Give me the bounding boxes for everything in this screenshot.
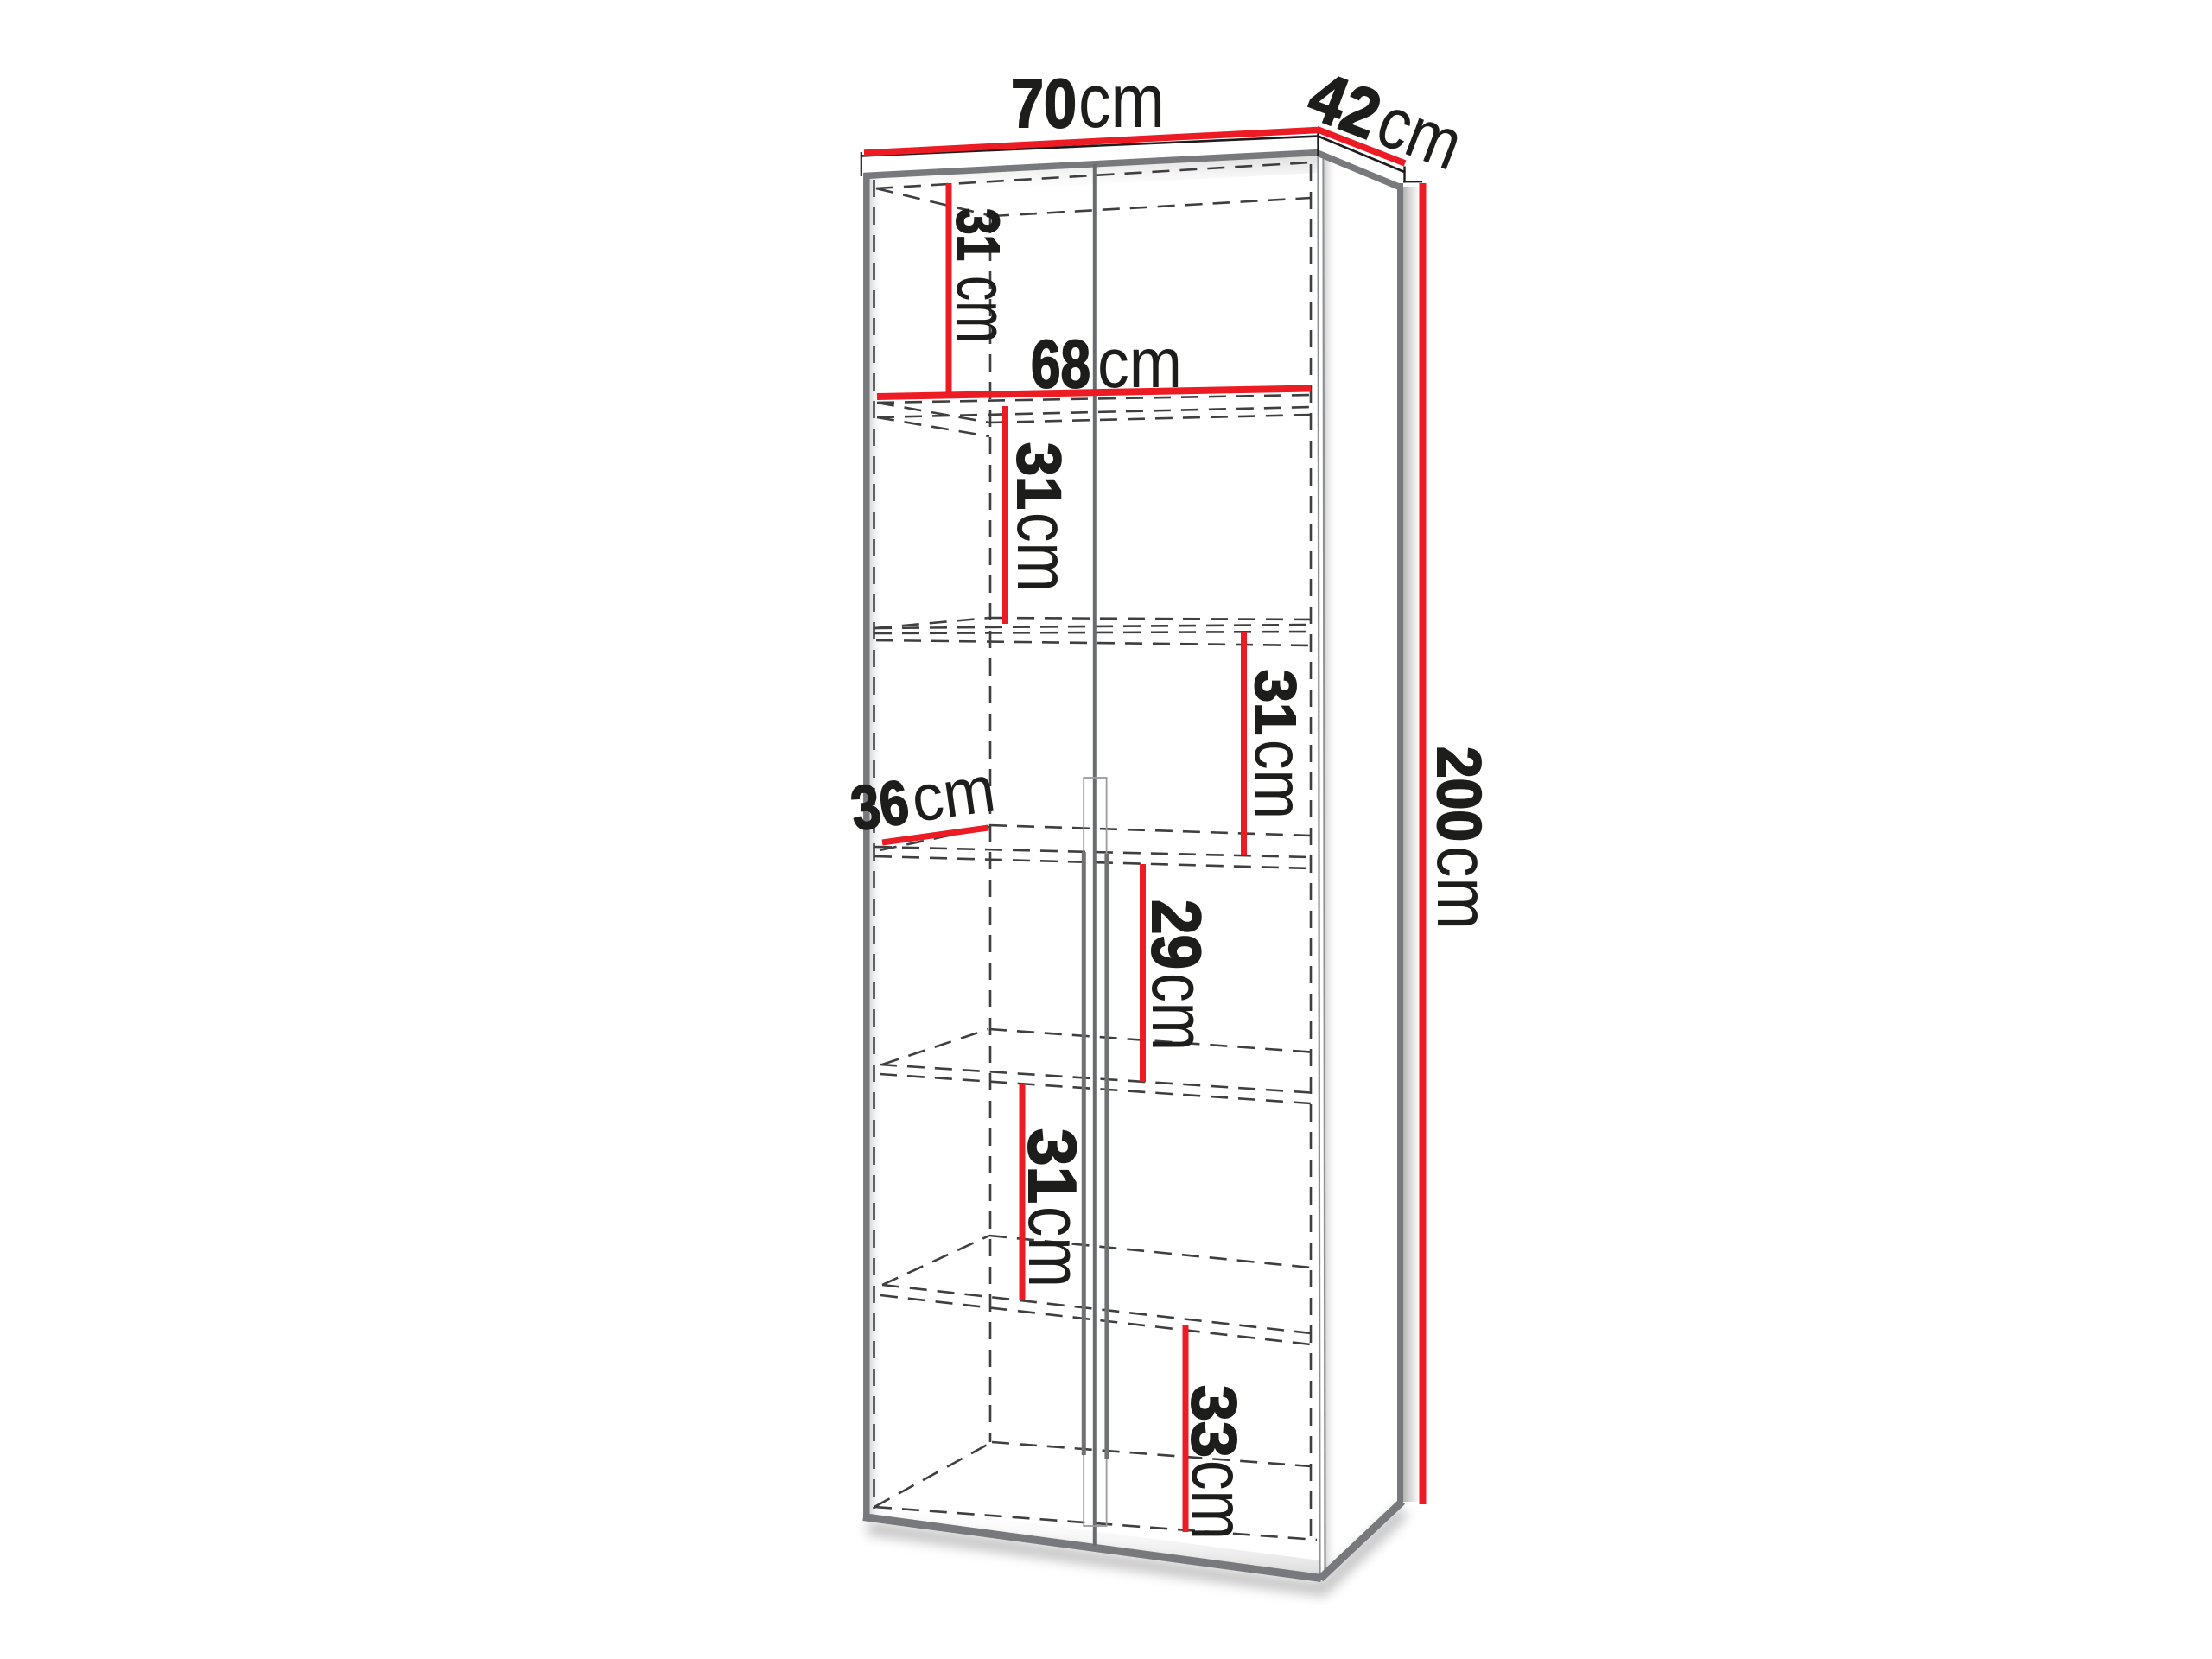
svg-text:cm: cm: [1421, 846, 1503, 930]
svg-text:29: 29: [1138, 899, 1215, 969]
svg-text:cm: cm: [1176, 1460, 1260, 1540]
svg-text:31: 31: [1243, 670, 1307, 735]
svg-text:33: 33: [1179, 1385, 1249, 1458]
svg-text:cm: cm: [1241, 740, 1318, 819]
svg-text:cm: cm: [942, 276, 1023, 343]
svg-text:200: 200: [1424, 747, 1492, 842]
svg-text:cm: cm: [907, 752, 1000, 836]
svg-text:31: 31: [944, 208, 1012, 261]
svg-text:cm: cm: [1078, 58, 1165, 143]
svg-text:cm: cm: [1013, 1206, 1098, 1287]
svg-text:cm: cm: [1136, 973, 1222, 1051]
svg-text:68: 68: [1031, 326, 1090, 402]
svg-text:36: 36: [847, 767, 912, 843]
svg-text:70: 70: [1011, 65, 1077, 142]
svg-text:31: 31: [1014, 1128, 1090, 1204]
svg-text:cm: cm: [1001, 512, 1084, 592]
svg-text:cm: cm: [1097, 324, 1182, 403]
svg-text:31: 31: [1004, 442, 1072, 510]
